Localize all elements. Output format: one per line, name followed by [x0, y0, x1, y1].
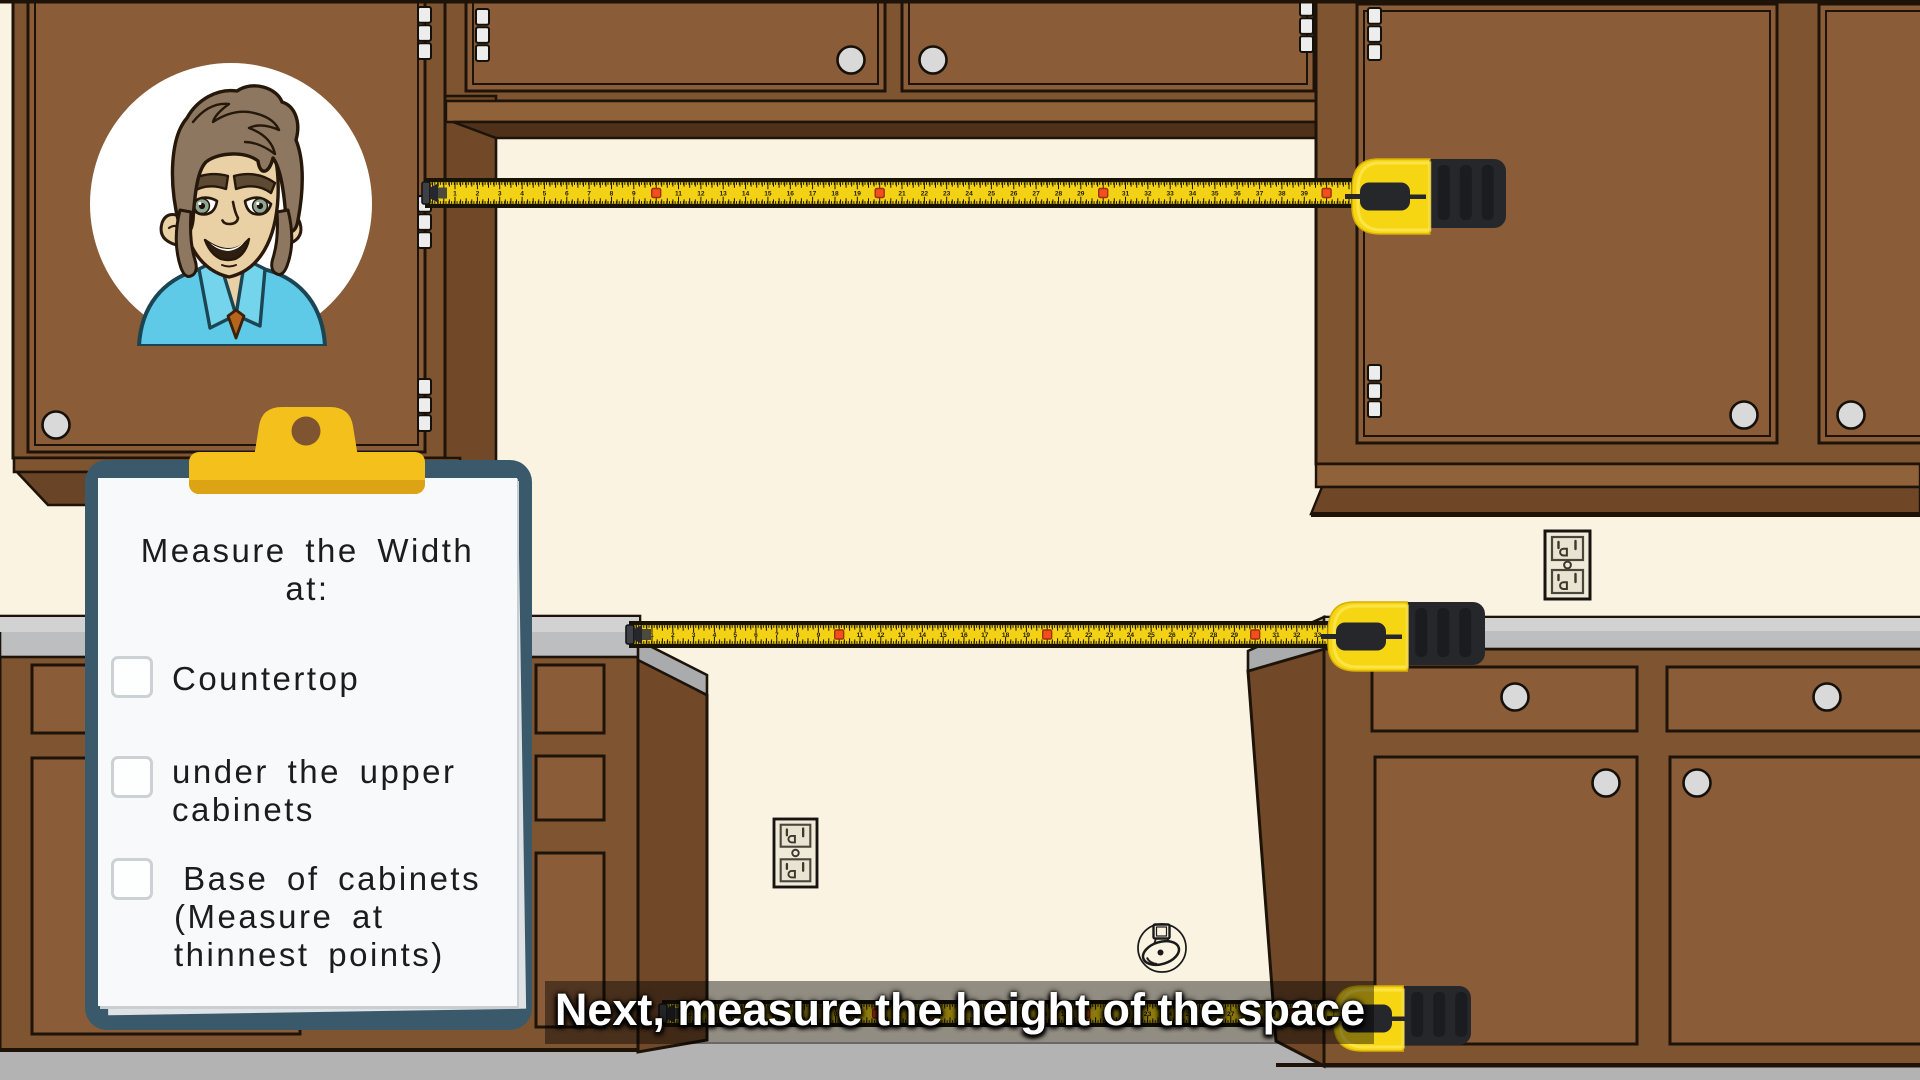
- svg-text:23: 23: [943, 191, 951, 198]
- svg-text:13: 13: [898, 632, 906, 639]
- svg-text:29: 29: [1077, 191, 1085, 198]
- svg-text:26: 26: [1010, 191, 1018, 198]
- svg-text:33: 33: [1167, 191, 1175, 198]
- svg-text:17: 17: [981, 632, 989, 639]
- svg-text:15: 15: [940, 632, 948, 639]
- svg-text:21: 21: [1064, 632, 1072, 639]
- svg-text:31: 31: [1122, 191, 1130, 198]
- svg-text:28: 28: [1055, 191, 1063, 198]
- svg-text:26: 26: [1168, 632, 1176, 639]
- svg-text:4: 4: [713, 632, 717, 639]
- svg-text:18: 18: [831, 191, 839, 198]
- svg-text:36: 36: [1234, 191, 1242, 198]
- svg-text:12: 12: [697, 191, 705, 198]
- svg-text:32: 32: [1144, 191, 1152, 198]
- svg-text:34: 34: [1189, 191, 1197, 198]
- svg-text:4: 4: [520, 191, 524, 198]
- svg-text:23: 23: [1106, 632, 1114, 639]
- svg-text:24: 24: [965, 191, 973, 198]
- svg-text:2: 2: [671, 632, 675, 639]
- svg-text:31: 31: [1272, 632, 1280, 639]
- svg-text:6: 6: [565, 191, 569, 198]
- svg-text:32: 32: [1293, 632, 1301, 639]
- svg-text:13: 13: [720, 191, 728, 198]
- svg-text:9: 9: [817, 632, 821, 639]
- svg-text:28: 28: [1210, 632, 1218, 639]
- svg-text:8: 8: [796, 632, 800, 639]
- svg-text:38: 38: [1278, 191, 1286, 198]
- svg-text:17: 17: [809, 191, 817, 198]
- svg-text:5: 5: [733, 632, 737, 639]
- svg-text:19: 19: [854, 191, 862, 198]
- svg-text:29: 29: [1231, 632, 1239, 639]
- svg-text:37: 37: [1256, 191, 1264, 198]
- svg-text:21: 21: [898, 191, 906, 198]
- svg-text:22: 22: [921, 191, 929, 198]
- svg-text:25: 25: [1148, 632, 1156, 639]
- svg-text:11: 11: [857, 632, 864, 639]
- svg-text:18: 18: [1002, 632, 1010, 639]
- svg-text:1: 1: [453, 191, 457, 198]
- svg-text:22: 22: [1085, 632, 1093, 639]
- svg-text:3: 3: [692, 632, 696, 639]
- svg-text:16: 16: [960, 632, 968, 639]
- svg-text:9: 9: [632, 191, 636, 198]
- svg-text:25: 25: [988, 191, 996, 198]
- svg-text:19: 19: [1023, 632, 1031, 639]
- svg-text:15: 15: [764, 191, 772, 198]
- svg-text:27: 27: [1032, 191, 1040, 198]
- svg-text:3: 3: [498, 191, 502, 198]
- svg-text:14: 14: [919, 632, 927, 639]
- svg-text:39: 39: [1301, 191, 1309, 198]
- svg-text:8: 8: [610, 191, 614, 198]
- svg-text:33: 33: [1314, 632, 1322, 639]
- svg-text:7: 7: [587, 191, 591, 198]
- svg-text:12: 12: [877, 632, 885, 639]
- svg-text:6: 6: [754, 632, 758, 639]
- svg-text:24: 24: [1127, 632, 1135, 639]
- svg-text:35: 35: [1211, 191, 1219, 198]
- svg-text:27: 27: [1189, 632, 1197, 639]
- svg-text:5: 5: [543, 191, 547, 198]
- svg-text:14: 14: [742, 191, 750, 198]
- svg-text:16: 16: [787, 191, 795, 198]
- svg-text:7: 7: [775, 632, 779, 639]
- svg-text:11: 11: [675, 191, 682, 198]
- svg-text:2: 2: [476, 191, 480, 198]
